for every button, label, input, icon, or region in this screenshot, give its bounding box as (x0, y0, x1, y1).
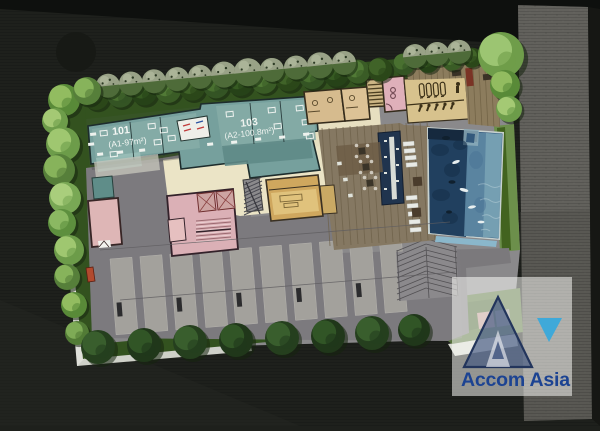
svg-text:Accom Asia: Accom Asia (461, 369, 570, 391)
svg-text:101: 101 (112, 124, 131, 138)
